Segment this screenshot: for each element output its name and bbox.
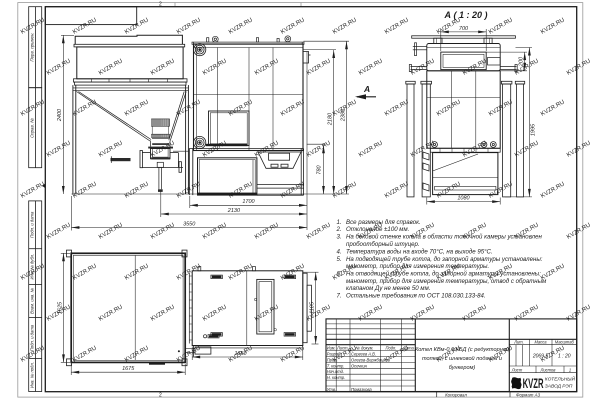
svg-text:бункером): бункером)	[449, 365, 476, 371]
svg-text:клапаном Ду не менее 50 мм.: клапаном Ду не менее 50 мм.	[346, 285, 430, 292]
svg-text:Осечкин: Осечкин	[351, 363, 368, 368]
svg-text:4.: 4.	[337, 248, 342, 255]
svg-text:1995: 1995	[531, 123, 537, 136]
svg-text:топкой, с шнековой подачей и: топкой, с шнековой подачей и	[422, 355, 502, 362]
svg-text:Инв. № дубл.: Инв. № дубл.	[30, 254, 35, 280]
svg-text:Котел КВм-0,6 КБД (с редукторн: Котел КВм-0,6 КБД (с редукторной	[415, 346, 509, 353]
svg-text:Разраб.: Разраб.	[327, 352, 342, 357]
svg-text:Инв. № подл.: Инв. № подл.	[30, 362, 35, 388]
svg-text:Н. контр.: Н. контр.	[327, 375, 345, 380]
svg-text:Пров.: Пров.	[327, 357, 338, 362]
svg-text:А: А	[363, 84, 370, 94]
svg-text:2069,5: 2069,5	[532, 354, 549, 360]
svg-text:Справ. №: Справ. №	[30, 118, 35, 138]
svg-text:Формат А3: Формат А3	[516, 392, 541, 397]
svg-text:Взам. инв. №: Взам. инв. №	[30, 287, 35, 313]
svg-text:Масса: Масса	[534, 339, 547, 344]
svg-text:Олегов-Вержбицкий: Олегов-Вержбицкий	[351, 357, 391, 362]
svg-text:2380: 2380	[340, 108, 346, 122]
svg-text:Сергеев А.В.: Сергеев А.В.	[351, 352, 376, 357]
svg-text:Подп. и дата: Подп. и дата	[30, 211, 35, 238]
svg-text:1 : 20: 1 : 20	[558, 354, 571, 360]
svg-text:Листов: Листов	[540, 367, 557, 372]
svg-text:1650: 1650	[234, 351, 247, 357]
svg-text:7.: 7.	[337, 292, 342, 299]
svg-text:№ докум.: № докум.	[356, 345, 374, 350]
svg-text:1675: 1675	[122, 366, 135, 372]
svg-text:манометр, прибор для измерения: манометр, прибор для измерения температу…	[346, 278, 547, 285]
svg-text:Масштаб: Масштаб	[555, 339, 575, 344]
svg-text:6.: 6.	[337, 271, 342, 278]
svg-text:Подп.: Подп.	[386, 345, 397, 350]
svg-text:3550: 3550	[183, 221, 196, 227]
svg-text:Помазкова: Помазкова	[351, 387, 372, 392]
svg-text:KVZR: KVZR	[523, 377, 544, 392]
svg-text:пробоотборный штуцер.: пробоотборный штуцер.	[346, 241, 420, 248]
svg-text:На боковой стенке котла в обла: На боковой стенке котла в области топочн…	[346, 234, 543, 241]
svg-text:2: 2	[159, 393, 162, 399]
svg-text:1700: 1700	[242, 199, 255, 205]
svg-text:манометр, прибор для измерения: манометр, прибор для измерения температу…	[346, 263, 489, 270]
svg-text:На подводящей трубе котла, до: На подводящей трубе котла, до запорной а…	[346, 256, 543, 263]
svg-text:Температура воды на входе 70°С: Температура воды на входе 70°С, на выход…	[346, 248, 493, 255]
svg-text:А ( 1 : 20 ): А ( 1 : 20 )	[443, 10, 487, 20]
svg-text:ЗАВОД РЭП: ЗАВОД РЭП	[545, 383, 573, 389]
svg-text:2180: 2180	[328, 112, 334, 126]
svg-text:1: 1	[569, 367, 571, 372]
svg-text:Отклонение ±100 мм.: Отклонение ±100 мм.	[346, 226, 409, 233]
svg-text:Лист: Лист	[336, 345, 348, 350]
svg-text:Нач.отд.: Нач.отд.	[327, 369, 344, 374]
svg-text:Копировал: Копировал	[445, 392, 467, 397]
svg-text:780: 780	[316, 164, 322, 174]
svg-text:Остальные требования по ОСТ 10: Остальные требования по ОСТ 108.030.133-…	[346, 292, 486, 299]
svg-text:2400: 2400	[57, 108, 63, 122]
svg-text:Лист: Лист	[511, 367, 523, 372]
svg-text:200: 200	[519, 56, 525, 67]
svg-text:2.: 2.	[336, 226, 342, 233]
svg-text:Дата: Дата	[402, 345, 415, 350]
svg-text:Перв. примен.: Перв. примен.	[30, 32, 35, 61]
svg-text:3.: 3.	[337, 234, 342, 241]
svg-text:Подп. и дата: Подп. и дата	[30, 324, 35, 351]
svg-text:2130: 2130	[227, 208, 241, 214]
svg-text:1080: 1080	[457, 196, 470, 202]
svg-text:5.: 5.	[337, 256, 342, 263]
svg-text:1105: 1105	[310, 301, 316, 314]
svg-text:Лит.: Лит.	[513, 339, 524, 344]
svg-text:1625: 1625	[58, 301, 64, 314]
svg-text:Т. контр.: Т. контр.	[327, 363, 345, 368]
svg-text:Утв.: Утв.	[327, 387, 336, 392]
svg-text:Все размеры для справок.: Все размеры для справок.	[346, 219, 421, 226]
svg-text:Изм.: Изм.	[327, 345, 336, 350]
svg-text:1.: 1.	[337, 219, 342, 226]
svg-text:700: 700	[459, 26, 469, 32]
svg-text:На отводящей трубе котла, до з: На отводящей трубе котла, до запорной ар…	[346, 271, 541, 278]
